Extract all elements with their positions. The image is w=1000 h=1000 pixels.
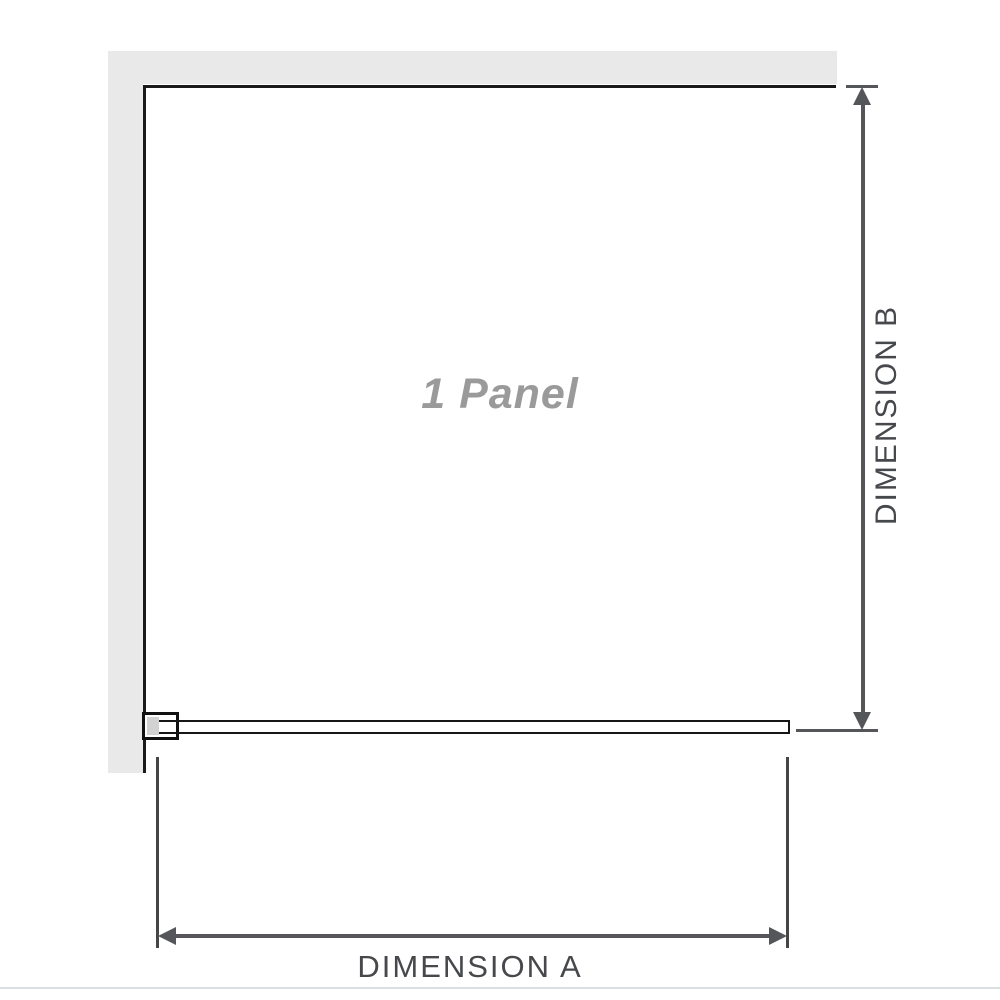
- panel-count-label: 1 Panel: [421, 370, 579, 419]
- arrowhead-down-icon: [853, 712, 871, 730]
- glass-panel-bar: [155, 720, 790, 734]
- dimension-b-label: DIMENSION B: [870, 305, 904, 525]
- wall-segment-left: [108, 51, 143, 773]
- panel-outline-left: [143, 85, 146, 773]
- bracket-inner-pad: [147, 717, 159, 735]
- arrowhead-left-icon: [158, 927, 176, 945]
- page-bottom-separator: [0, 987, 1000, 989]
- dimension-a-label: DIMENSION A: [357, 949, 582, 985]
- wall-segment-top: [108, 51, 837, 84]
- dimension-a-extension-left: [156, 757, 159, 948]
- dimension-b-arrow-line: [861, 101, 865, 715]
- dimension-a-extension-right: [786, 757, 789, 948]
- arrowhead-up-icon: [853, 87, 871, 105]
- shower-panel-diagram: 1 Panel DIMENSION B DIMENSION A: [0, 0, 1000, 1000]
- arrowhead-right-icon: [769, 927, 787, 945]
- dimension-a-arrow-line: [172, 934, 772, 938]
- panel-outline-top: [143, 85, 836, 88]
